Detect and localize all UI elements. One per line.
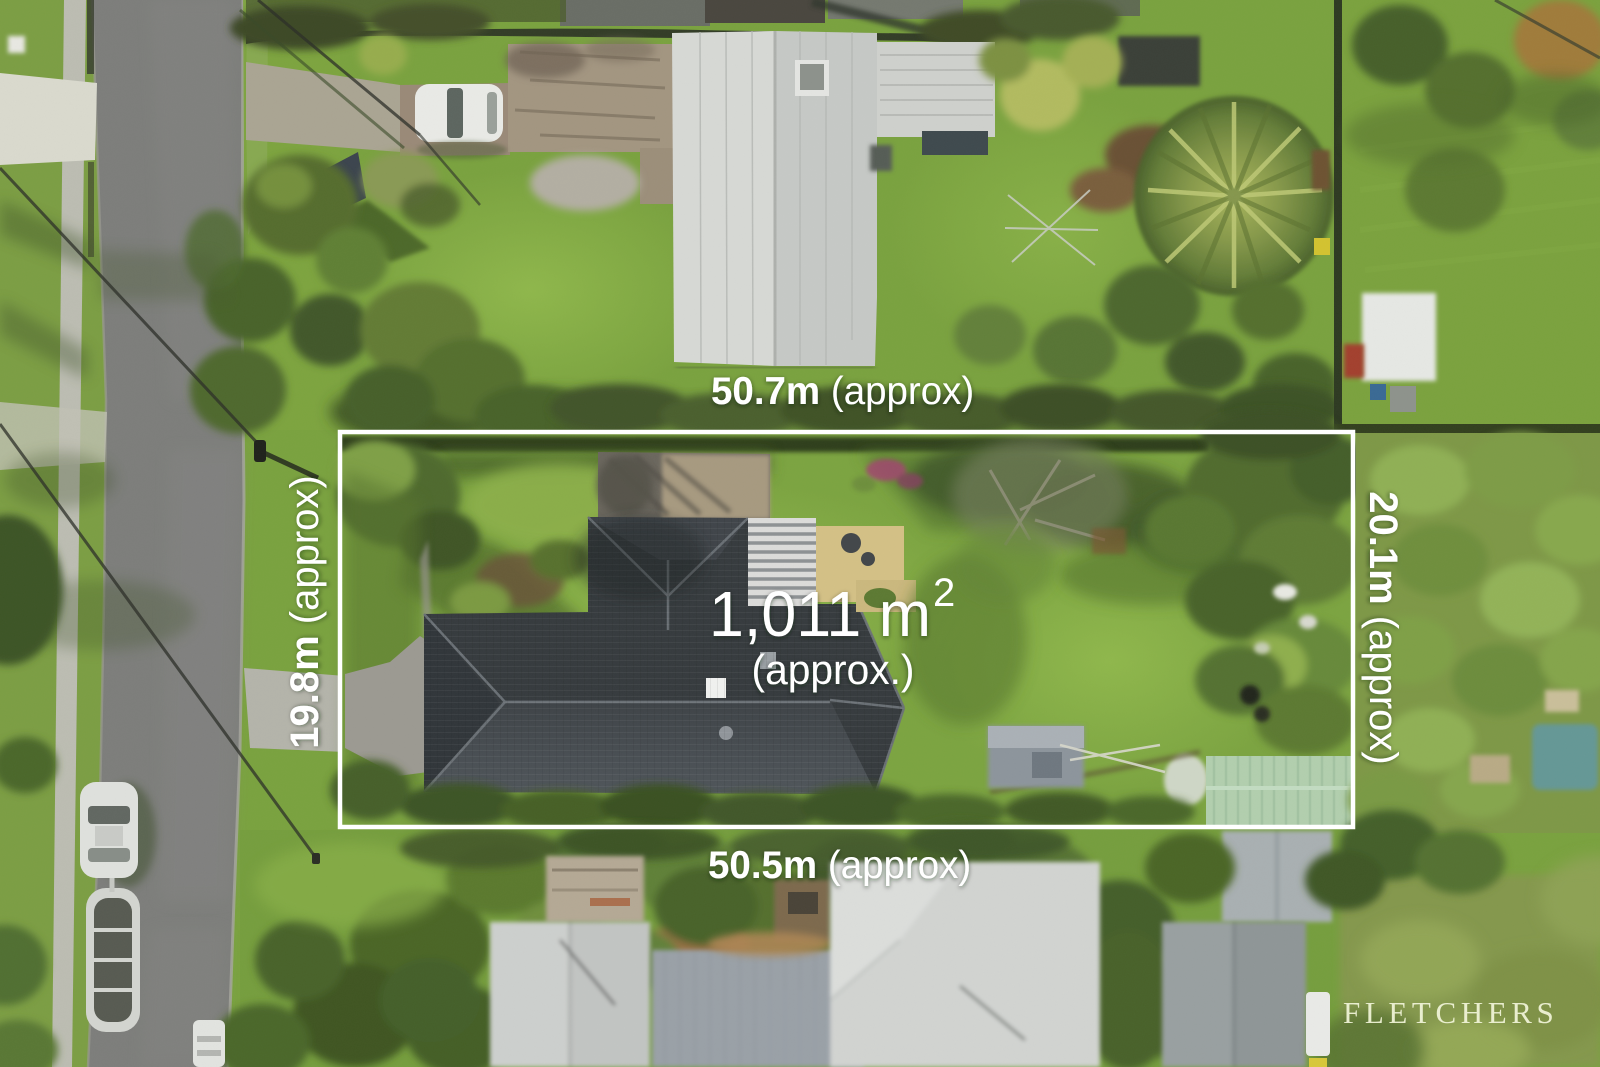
svg-text:FLETCHERS: FLETCHERS xyxy=(1343,995,1558,1030)
svg-text:1,011 m: 1,011 m xyxy=(709,578,931,650)
svg-text:(approx.): (approx.) xyxy=(752,646,915,693)
svg-text:50.5m (approx): 50.5m (approx) xyxy=(708,844,971,887)
svg-text:20.1m (approx): 20.1m (approx) xyxy=(1361,491,1405,764)
svg-text:19.8m (approx): 19.8m (approx) xyxy=(283,475,327,748)
svg-text:50.7m (approx): 50.7m (approx) xyxy=(711,370,974,413)
svg-text:2: 2 xyxy=(933,571,955,615)
